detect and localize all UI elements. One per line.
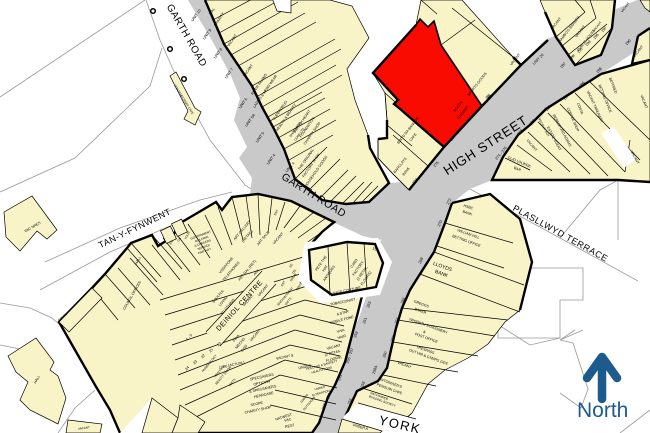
svg-text:North: North [577,399,628,422]
